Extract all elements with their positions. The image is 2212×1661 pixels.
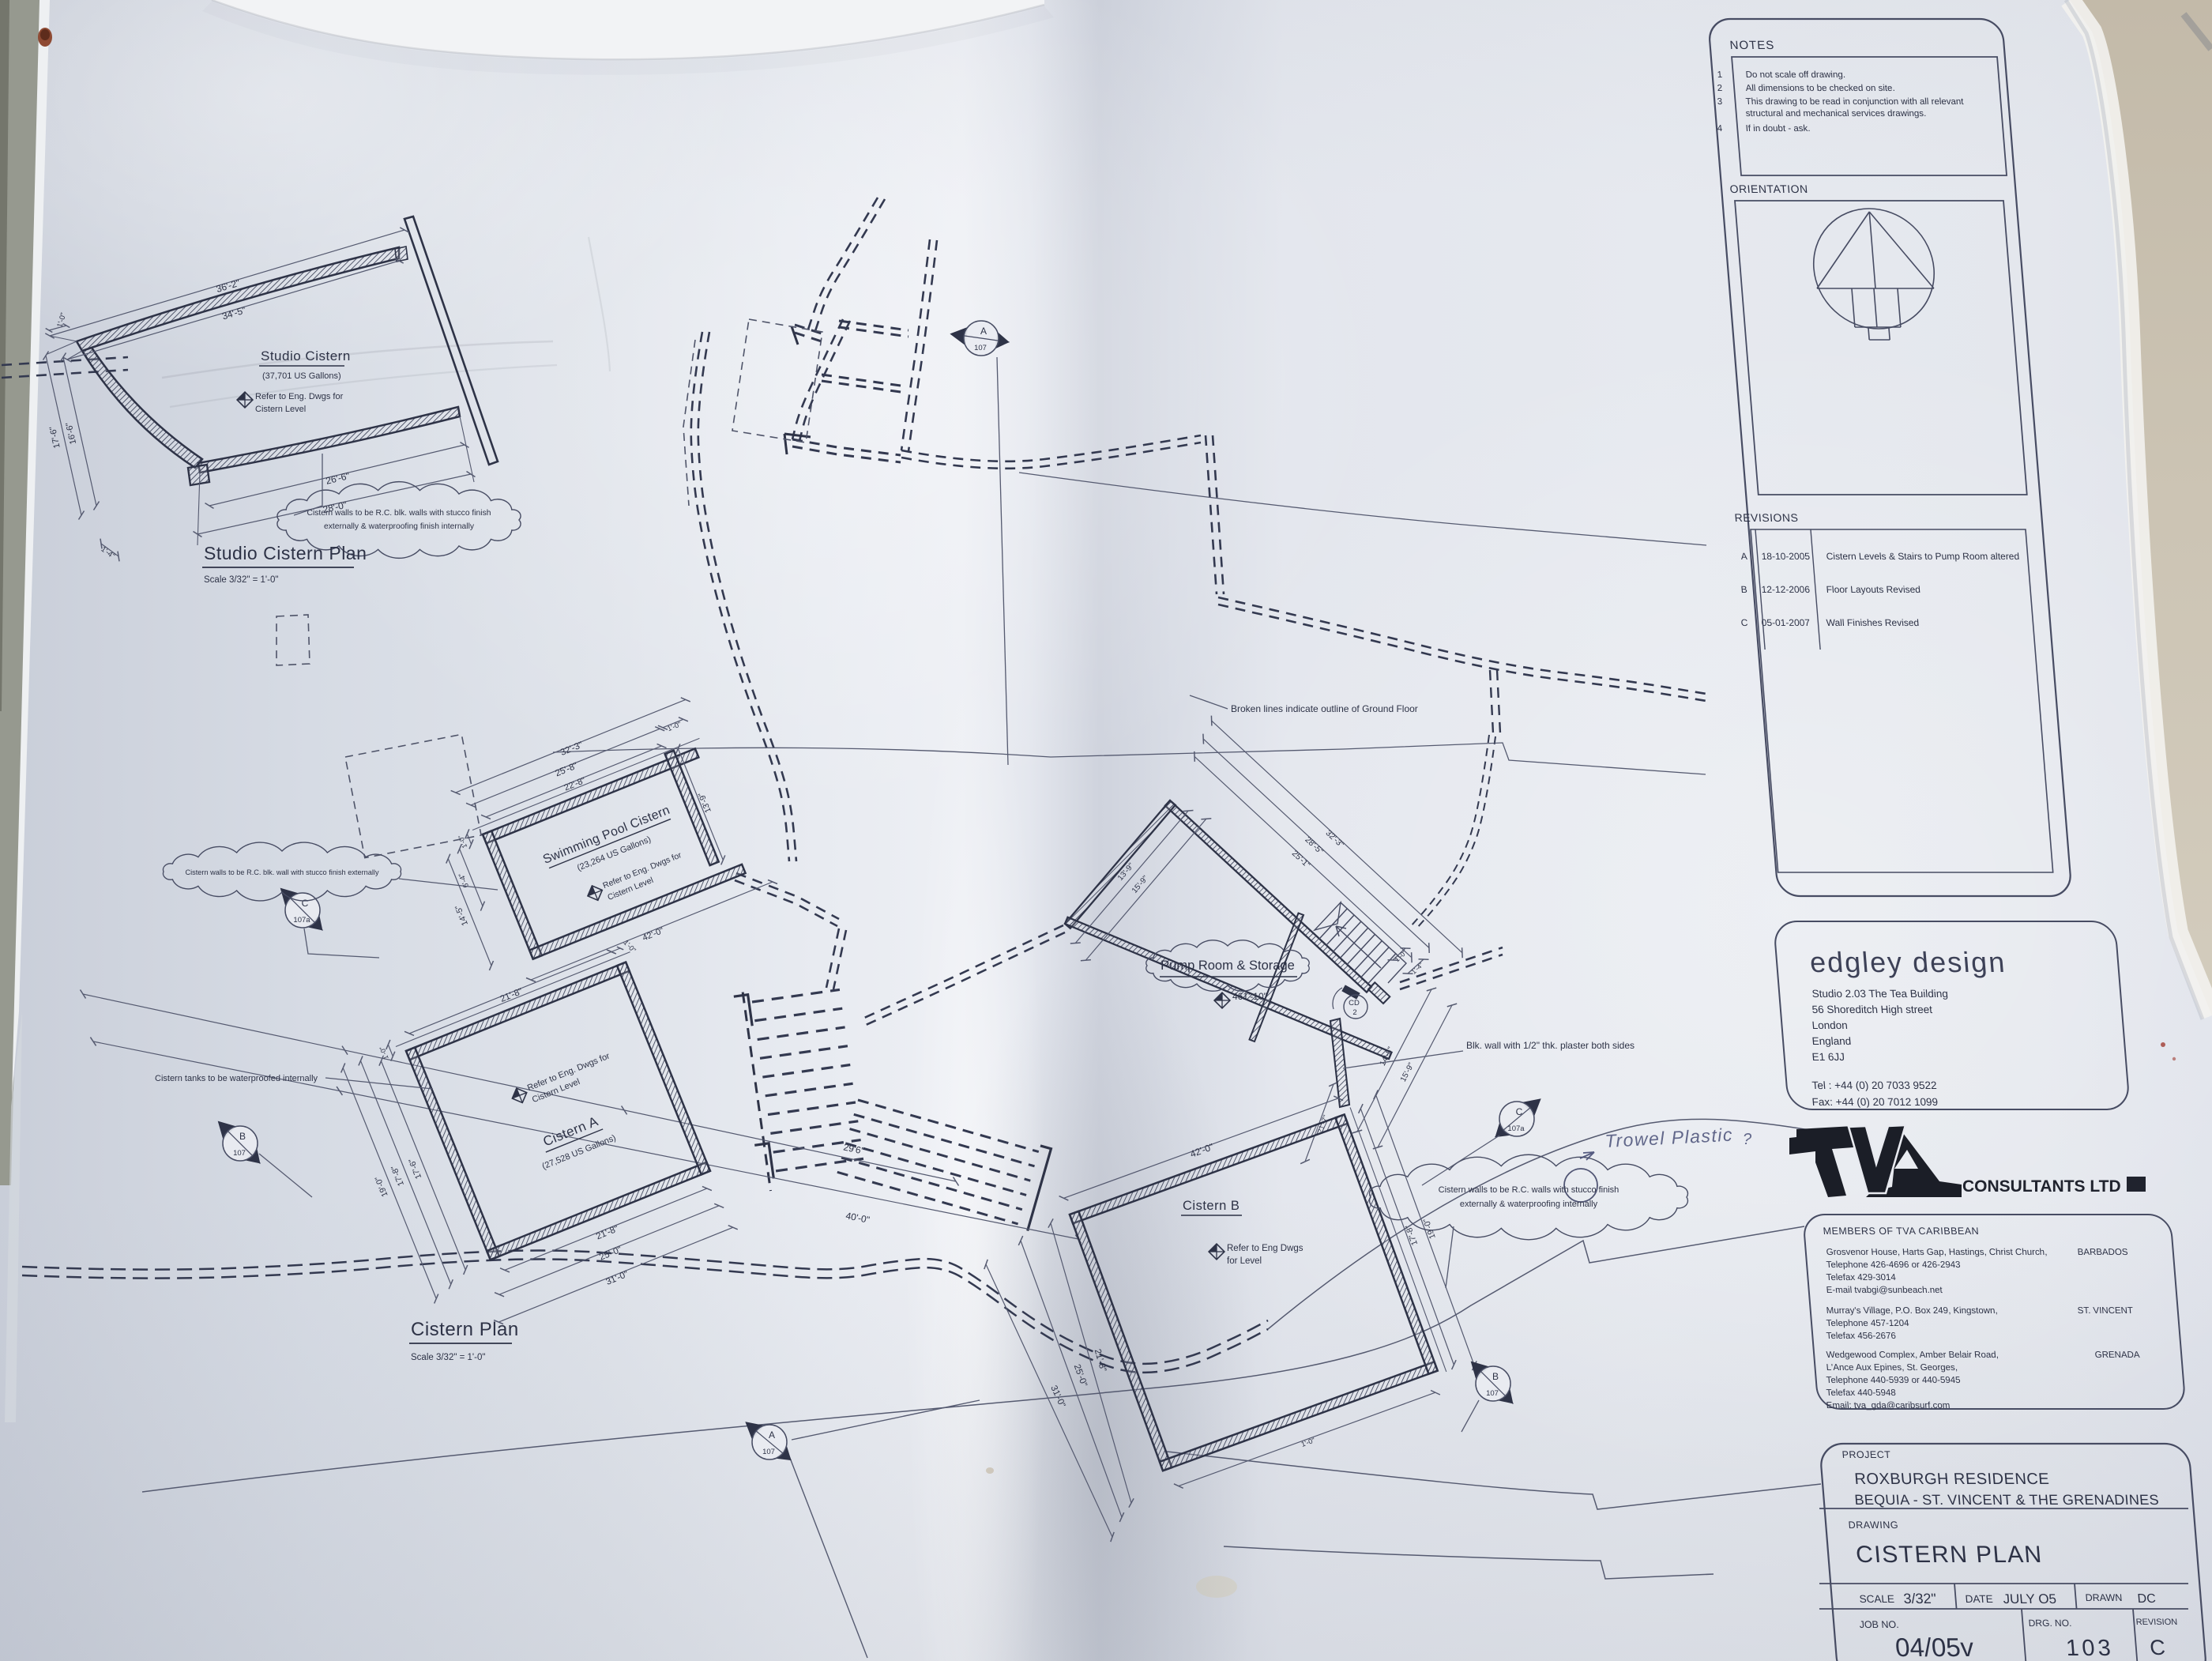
svg-text:Wedgewood Complex, Amber Belai: Wedgewood Complex, Amber Belair Road, (1826, 1350, 1999, 1360)
svg-text:56 Shoreditch High street: 56 Shoreditch High street (1811, 1004, 1933, 1015)
svg-text:L'Ance Aux Epines, St. Georges: L'Ance Aux Epines, St. Georges, (1826, 1363, 1958, 1373)
svg-text:107: 107 (233, 1149, 246, 1158)
svg-text:PROJECT: PROJECT (1841, 1449, 1891, 1460)
svg-text:04/05v: 04/05v (1894, 1633, 1975, 1661)
svg-text:Cistern Plan: Cistern Plan (411, 1319, 519, 1340)
svg-text:461'-10": 461'-10" (1232, 991, 1267, 1002)
svg-text:CD: CD (1349, 999, 1360, 1008)
svg-text:Cistern walls to be R.C. walls: Cistern walls to be R.C. walls with stuc… (1439, 1185, 1619, 1195)
svg-text:107a: 107a (293, 916, 310, 925)
svg-text:C: C (2149, 1636, 2166, 1659)
svg-text:Email: tva_gda@caribsurf.com: Email: tva_gda@caribsurf.com (1826, 1401, 1950, 1411)
svg-text:Cistern tanks to be waterproof: Cistern tanks to be waterproofed interna… (155, 1074, 318, 1083)
svg-text:A: A (769, 1429, 775, 1441)
svg-text:12-12-2006: 12-12-2006 (1761, 584, 1811, 595)
svg-text:B: B (1492, 1371, 1499, 1382)
svg-text:Cistern walls to be R.C. blk.: Cistern walls to be R.C. blk. walls with… (307, 509, 491, 518)
svg-text:externally & waterproofing fin: externally & waterproofing finish intern… (324, 522, 475, 531)
svg-text:JOB NO.: JOB NO. (1859, 1619, 1899, 1630)
svg-text:Murray's Village, P.O. Box 249: Murray's Village, P.O. Box 249, Kingstow… (1826, 1306, 1998, 1316)
svg-text:structural and mechanical serv: structural and mechanical services drawi… (1745, 109, 1926, 119)
svg-text:MEMBERS OF TVA CARIBBEAN: MEMBERS OF TVA CARIBBEAN (1823, 1226, 1980, 1237)
svg-text:DATE: DATE (1965, 1593, 1993, 1605)
svg-text:DRG. NO.: DRG. NO. (2028, 1618, 2072, 1629)
svg-text:B: B (1740, 584, 1747, 595)
svg-text:Telefax 440-5948: Telefax 440-5948 (1826, 1388, 1896, 1398)
svg-text:Broken lines indicate outline: Broken lines indicate outline of Ground … (1231, 703, 1418, 714)
svg-text:Scale 3/32" = 1'-0": Scale 3/32" = 1'-0" (204, 575, 278, 585)
svg-text:C: C (1740, 617, 1748, 628)
svg-text:B: B (239, 1131, 246, 1142)
svg-text:REVISION: REVISION (2135, 1618, 2177, 1627)
svg-text:NOTES: NOTES (1729, 39, 1775, 52)
svg-text:Grosvenor House, Harts Gap, Ha: Grosvenor House, Harts Gap, Hastings, Ch… (1826, 1248, 2047, 1257)
svg-text:A: A (980, 326, 987, 337)
svg-text:If in doubt - ask.: If in doubt - ask. (1745, 124, 1811, 134)
svg-text:Telephone 440-5939 or 440-5945: Telephone 440-5939 or 440-5945 (1826, 1376, 1961, 1385)
svg-text:Studio 2.03 The Tea Building: Studio 2.03 The Tea Building (1811, 988, 1948, 1000)
svg-text:BARBADOS: BARBADOS (2077, 1248, 2128, 1257)
svg-text:London: London (1811, 1019, 1848, 1031)
svg-text:Refer to Eng Dwgs: Refer to Eng Dwgs (1227, 1244, 1303, 1253)
svg-text:3: 3 (1717, 97, 1722, 107)
svg-text:Telefax 429-3014: Telefax 429-3014 (1826, 1273, 1897, 1282)
svg-text:Wall Finishes Revised: Wall Finishes Revised (1826, 617, 1920, 628)
svg-text:REVISIONS: REVISIONS (1734, 511, 1799, 524)
svg-text:Cistern Level: Cistern Level (255, 405, 306, 414)
svg-text:ST. VINCENT: ST. VINCENT (2077, 1306, 2133, 1316)
svg-text:Pump Room & Storage: Pump Room & Storage (1161, 959, 1295, 973)
svg-text:05-01-2007: 05-01-2007 (1761, 617, 1811, 628)
svg-text:Scale 3/32" = 1'-0": Scale 3/32" = 1'-0" (411, 1353, 485, 1362)
svg-text:Studio Cistern Plan: Studio Cistern Plan (204, 543, 367, 563)
svg-text:2: 2 (1352, 1008, 1356, 1017)
svg-text:Telephone 457-1204: Telephone 457-1204 (1826, 1319, 1909, 1328)
svg-text:DC: DC (2137, 1591, 2157, 1606)
svg-text:GRENADA: GRENADA (2094, 1350, 2140, 1360)
svg-text:Cistern Levels & Stairs to Pum: Cistern Levels & Stairs to Pump Room alt… (1826, 551, 2020, 562)
svg-text:A: A (1740, 551, 1747, 562)
svg-text:E1 6JJ: E1 6JJ (1811, 1051, 1845, 1063)
svg-text:DRAWN: DRAWN (2085, 1592, 2123, 1603)
svg-text:Cistern B: Cistern B (1183, 1199, 1240, 1213)
svg-text:Studio Cistern: Studio Cistern (261, 348, 351, 363)
svg-text:CONSULTANTS LTD: CONSULTANTS LTD (1962, 1177, 2121, 1196)
svg-text:(37,701 US Gallons): (37,701 US Gallons) (262, 371, 341, 381)
svg-text:externally & waterproofing int: externally & waterproofing internally (1460, 1200, 1598, 1209)
svg-text:?: ? (1743, 1131, 1752, 1148)
svg-text:E-mail tvabgi@sunbeach.net: E-mail tvabgi@sunbeach.net (1826, 1286, 1943, 1295)
svg-text:103: 103 (2065, 1636, 2115, 1661)
svg-text:107: 107 (1486, 1389, 1499, 1398)
svg-text:Tel : +44 (0) 20 7033 9522: Tel : +44 (0) 20 7033 9522 (1811, 1079, 1937, 1091)
svg-text:DRAWING: DRAWING (1848, 1520, 1898, 1531)
svg-text:107: 107 (974, 344, 987, 352)
svg-text:107: 107 (762, 1448, 775, 1456)
svg-text:1: 1 (1717, 70, 1722, 80)
svg-text:Telefax 456-2676: Telefax 456-2676 (1826, 1331, 1896, 1341)
svg-text:ORIENTATION: ORIENTATION (1729, 183, 1808, 195)
svg-text:ROXBURGH RESIDENCE: ROXBURGH RESIDENCE (1854, 1471, 2050, 1488)
svg-text:This drawing to be read in con: This drawing to be read in conjunction w… (1745, 97, 1964, 107)
svg-text:Do not scale off drawing.: Do not scale off drawing. (1745, 70, 1845, 80)
svg-text:BEQUIA - ST. VINCENT & THE GRE: BEQUIA - ST. VINCENT & THE GRENADINES (1854, 1492, 2160, 1508)
svg-text:JULY O5: JULY O5 (2003, 1591, 2057, 1606)
svg-text:3/32": 3/32" (1903, 1591, 1937, 1606)
svg-text:C: C (1516, 1106, 1523, 1117)
svg-text:edgley design: edgley design (1808, 946, 2007, 978)
svg-text:C: C (302, 898, 309, 909)
svg-text:for Level: for Level (1227, 1256, 1262, 1266)
svg-text:England: England (1811, 1035, 1852, 1047)
svg-text:18-10-2005: 18-10-2005 (1761, 551, 1811, 562)
svg-text:Blk. wall with 1/2" thk. plast: Blk. wall with 1/2" thk. plaster both si… (1466, 1040, 1635, 1051)
svg-text:Cistern walls to be R.C. blk.: Cistern walls to be R.C. blk. wall with … (185, 868, 378, 876)
svg-text:Fax: +44 (0) 20 7012 1099: Fax: +44 (0) 20 7012 1099 (1811, 1096, 1939, 1108)
svg-text:107a: 107a (1507, 1124, 1525, 1133)
svg-text:All dimensions to be checked o: All dimensions to be checked on site. (1745, 84, 1895, 93)
svg-text:SCALE: SCALE (1859, 1593, 1894, 1605)
svg-text:Floor Layouts Revised: Floor Layouts Revised (1826, 584, 1920, 595)
svg-text:Refer to Eng. Dwgs for: Refer to Eng. Dwgs for (255, 392, 344, 401)
svg-text:Telephone 426-4696 or 426-2943: Telephone 426-4696 or 426-2943 (1826, 1260, 1961, 1270)
svg-text:CISTERN PLAN: CISTERN PLAN (1855, 1542, 2044, 1568)
svg-text:2: 2 (1717, 84, 1722, 93)
